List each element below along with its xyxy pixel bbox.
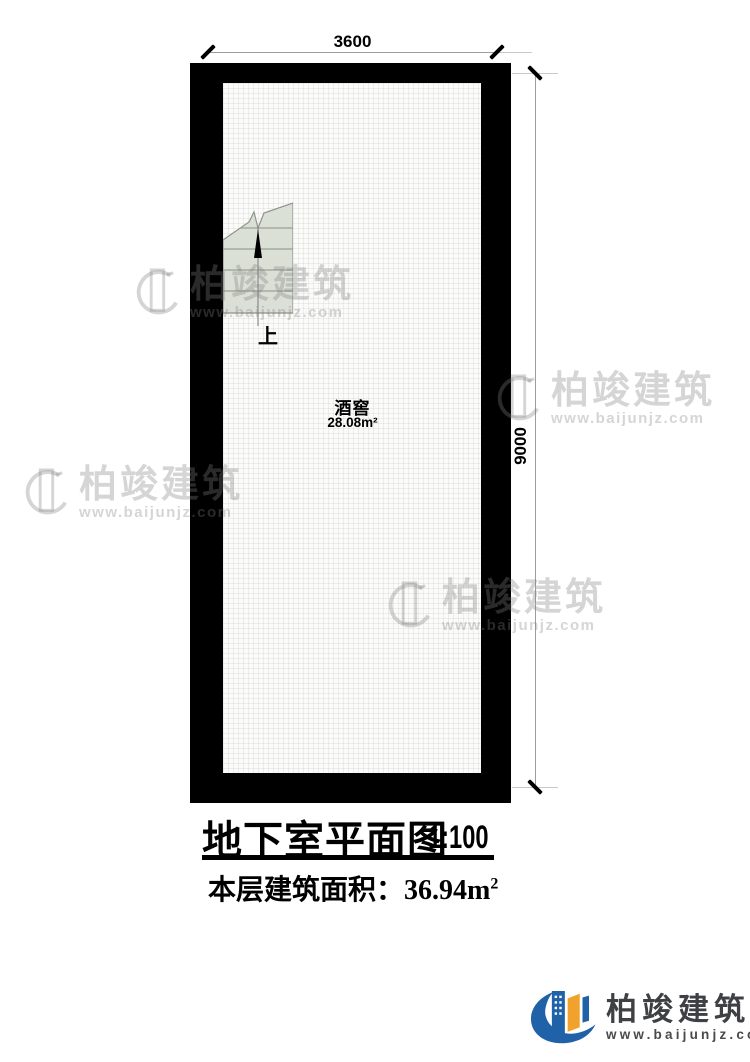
stair-up-label: 上 <box>250 320 286 349</box>
floor-area-line: 本层建筑面积：36.94m2 <box>208 868 498 908</box>
company-logo: 柏竣建筑 www.baijunjz.com <box>524 984 750 1050</box>
room-area-label: 28.08m² <box>300 415 405 430</box>
company-logo-icon <box>524 984 602 1050</box>
watermark-text: 柏竣建筑 www.baijunjz.com <box>551 371 715 427</box>
watermark-url: www.baijunjz.com <box>551 411 704 427</box>
floor-area-value: 36.94m <box>404 875 490 906</box>
plan-scale: 1:100 <box>428 819 489 856</box>
basement-exterior-walls <box>190 63 511 803</box>
dimension-extension-top-right <box>497 52 532 53</box>
watermark: 柏竣建筑 www.baijunjz.com <box>492 368 715 430</box>
company-brand: 柏竣建筑 <box>606 993 750 1027</box>
company-logo-text: 柏竣建筑 www.baijunjz.com <box>606 993 750 1042</box>
dimension-width-value: 3600 <box>208 32 497 52</box>
floor-area-label: 本层建筑面积： <box>208 875 404 906</box>
dimension-height-value: 9000 <box>512 424 530 468</box>
floor-area-superscript: 2 <box>490 876 498 893</box>
title-underline <box>202 855 494 860</box>
watermark-logo-icon <box>131 262 181 324</box>
dimension-line-right <box>535 73 536 787</box>
watermark-brand: 柏竣建筑 <box>551 371 715 411</box>
company-url: www.baijunjz.com <box>606 1027 750 1042</box>
staircase <box>223 200 293 330</box>
dimension-line-top <box>208 52 497 53</box>
floor-plan-page: 上 酒窖 28.08m² 3600 9000 柏竣建筑 www.baijunjz… <box>0 0 750 1062</box>
watermark-logo-icon <box>20 462 70 524</box>
